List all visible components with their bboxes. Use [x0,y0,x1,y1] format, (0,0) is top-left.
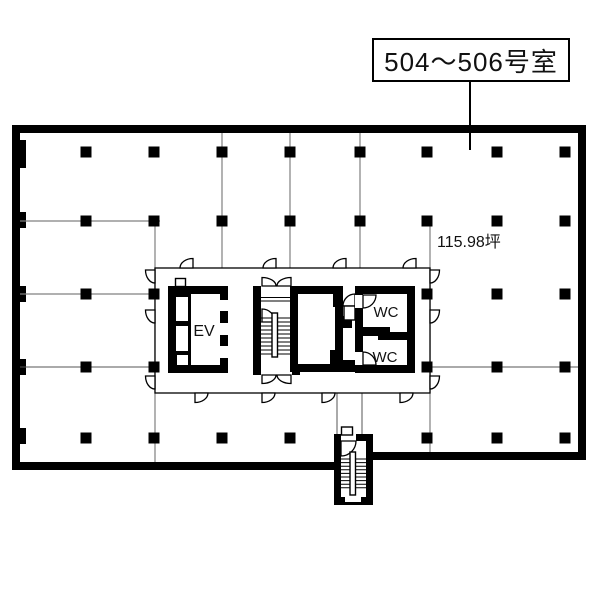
bottom-stairwell [334,427,373,505]
area-label: 115.98坪 [437,233,501,251]
wc-block: WC WC [355,286,415,373]
middle-room [290,286,343,372]
room-number-label: 504〜506号室 [372,38,570,82]
wc-bottom-label: WC [373,349,398,366]
room-number-text: 504〜506号室 [384,42,558,79]
floor-plan-page: EV [0,0,600,600]
elevator-label: EV [193,323,215,340]
elevator-room: EV [168,279,228,374]
wc-top-label: WC [374,304,399,321]
floor-plan-drawing: EV [0,0,600,600]
